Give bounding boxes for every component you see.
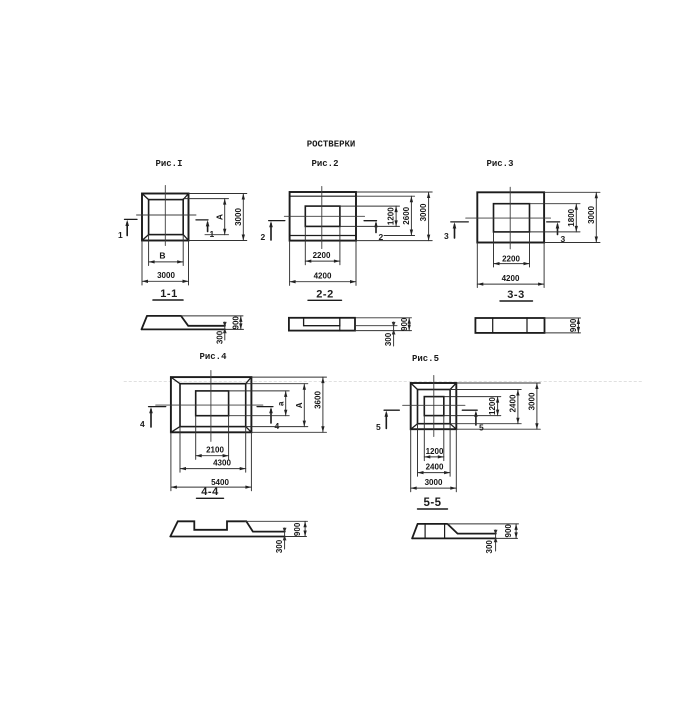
svg-text:Рис.I: Рис.I bbox=[155, 159, 182, 169]
svg-text:Рис.5: Рис.5 bbox=[412, 354, 439, 364]
svg-text:2400: 2400 bbox=[426, 463, 444, 472]
svg-text:2-2: 2-2 bbox=[316, 289, 333, 301]
svg-text:3000: 3000 bbox=[587, 206, 596, 224]
svg-text:2: 2 bbox=[261, 232, 266, 242]
svg-text:3: 3 bbox=[444, 231, 449, 241]
svg-text:5-5: 5-5 bbox=[423, 497, 441, 509]
svg-text:300: 300 bbox=[485, 540, 494, 554]
svg-text:3000: 3000 bbox=[234, 208, 243, 226]
svg-text:2600: 2600 bbox=[402, 206, 411, 224]
svg-text:1800: 1800 bbox=[567, 208, 576, 226]
svg-text:А: А bbox=[295, 402, 304, 408]
svg-text:4300: 4300 bbox=[213, 459, 231, 468]
svg-text:4: 4 bbox=[275, 421, 280, 431]
svg-text:300: 300 bbox=[216, 330, 225, 344]
svg-text:3600: 3600 bbox=[313, 391, 322, 409]
svg-text:3000: 3000 bbox=[527, 392, 536, 410]
svg-text:2200: 2200 bbox=[502, 255, 520, 264]
svg-text:1: 1 bbox=[210, 229, 215, 239]
svg-text:а: а bbox=[276, 401, 285, 406]
svg-text:1: 1 bbox=[118, 230, 123, 240]
svg-text:3000: 3000 bbox=[425, 478, 443, 487]
svg-text:В: В bbox=[159, 251, 165, 261]
svg-text:3000: 3000 bbox=[157, 271, 175, 280]
svg-text:1-1: 1-1 bbox=[160, 288, 177, 300]
svg-text:1200: 1200 bbox=[488, 397, 497, 415]
svg-text:2100: 2100 bbox=[206, 446, 224, 455]
svg-text:900: 900 bbox=[400, 317, 409, 331]
svg-text:900: 900 bbox=[293, 522, 302, 536]
svg-text:4200: 4200 bbox=[314, 272, 332, 281]
svg-text:4200: 4200 bbox=[502, 274, 520, 283]
svg-text:Рис.2: Рис.2 bbox=[311, 159, 338, 169]
svg-text:А: А bbox=[214, 214, 224, 220]
svg-text:Рис.3: Рис.3 bbox=[486, 159, 513, 169]
svg-text:900: 900 bbox=[232, 316, 241, 330]
svg-text:2200: 2200 bbox=[313, 251, 331, 260]
svg-text:5: 5 bbox=[376, 422, 381, 432]
svg-text:2400: 2400 bbox=[508, 394, 517, 412]
svg-text:3-3: 3-3 bbox=[507, 289, 524, 301]
svg-text:1200: 1200 bbox=[387, 207, 396, 225]
svg-text:300: 300 bbox=[384, 332, 393, 346]
svg-text:РОСТВЕРКИ: РОСТВЕРКИ bbox=[307, 140, 356, 150]
svg-text:1200: 1200 bbox=[426, 447, 444, 456]
svg-text:300: 300 bbox=[275, 539, 284, 553]
svg-text:Рис.4: Рис.4 bbox=[199, 352, 227, 362]
svg-text:900: 900 bbox=[569, 318, 578, 332]
svg-text:4: 4 bbox=[140, 419, 145, 429]
svg-text:3000: 3000 bbox=[419, 203, 428, 221]
svg-text:4-4: 4-4 bbox=[201, 486, 219, 498]
svg-text:900: 900 bbox=[504, 524, 513, 538]
